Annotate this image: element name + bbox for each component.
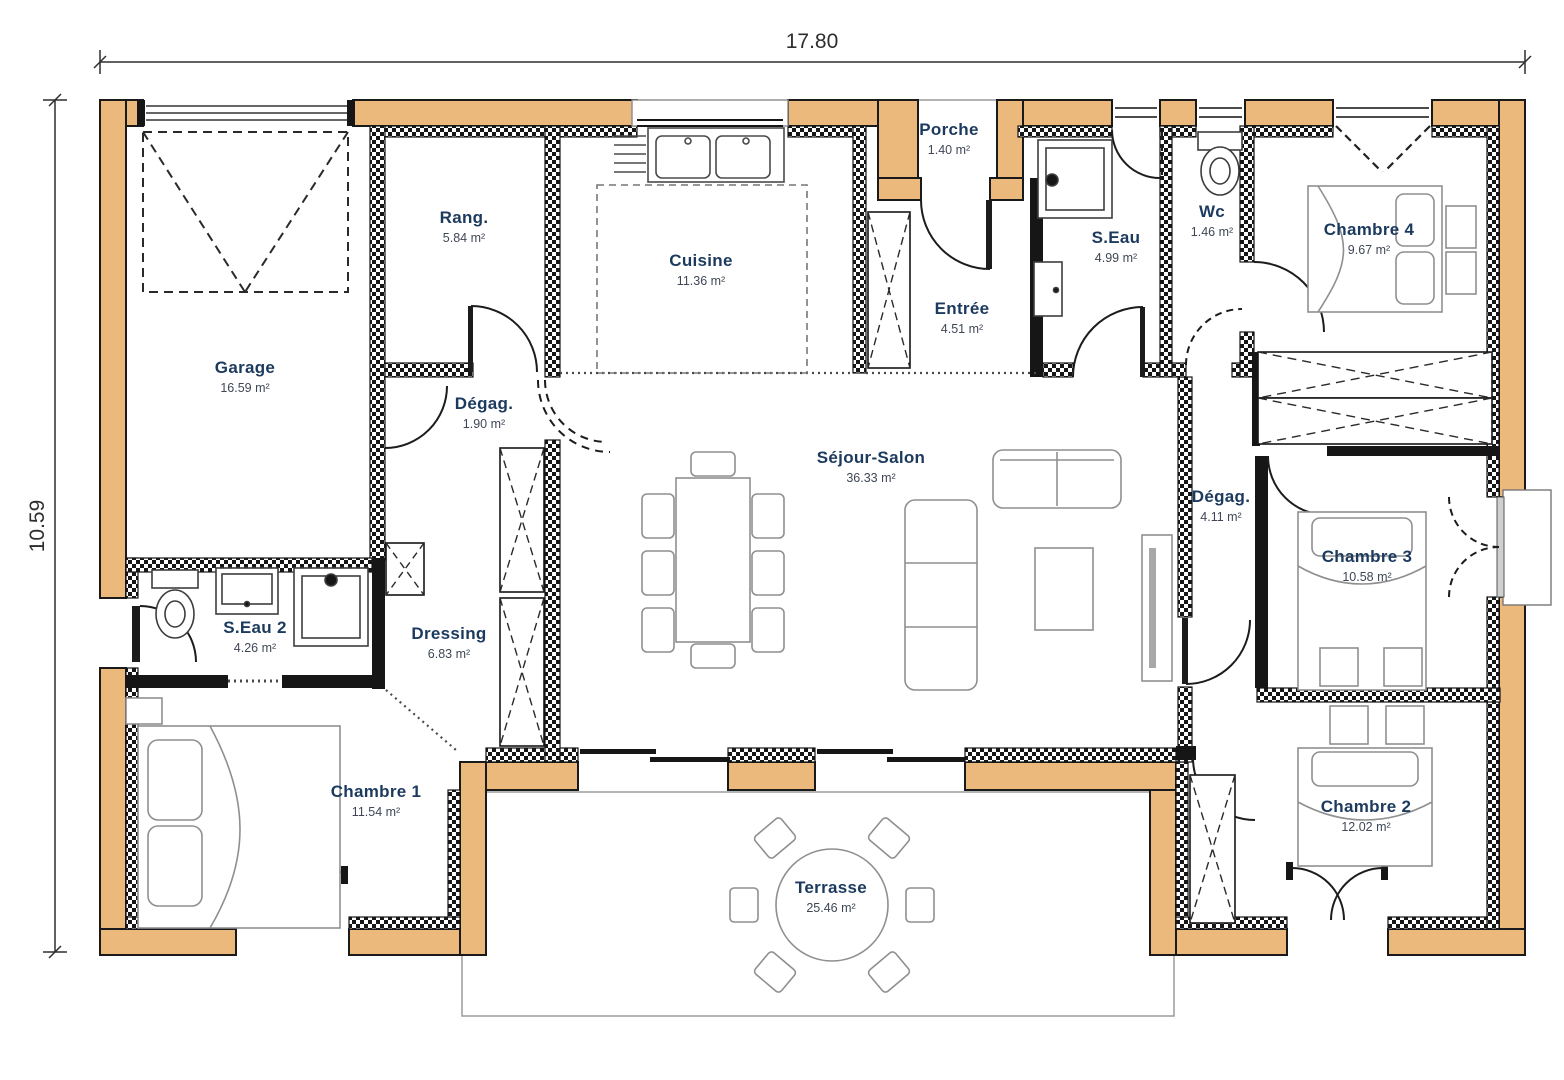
sofa-two-seat bbox=[993, 450, 1121, 508]
toilet-wc bbox=[1198, 132, 1242, 195]
kitchen-counter bbox=[597, 185, 807, 373]
terrace-table bbox=[730, 816, 934, 993]
coffee-table bbox=[1035, 548, 1093, 630]
toilet-s-eau-2 bbox=[152, 570, 198, 638]
bed-chambre-2 bbox=[1298, 706, 1432, 866]
sink-s-eau-2 bbox=[216, 568, 278, 614]
bed-chambre-1 bbox=[126, 698, 340, 928]
floor-plan-drawing bbox=[0, 0, 1564, 1080]
cabinet-s-eau bbox=[1034, 262, 1062, 316]
sofa-three-seat bbox=[905, 500, 977, 690]
shower-s-eau-2 bbox=[294, 568, 368, 646]
dimension-width-label: 17.80 bbox=[786, 30, 839, 54]
kitchen-sink bbox=[614, 128, 784, 182]
floor-plan-page: 17.80 10.59 Garage 16.59 m² Rang. 5.84 m… bbox=[0, 0, 1564, 1080]
garage-door-swing bbox=[143, 132, 348, 292]
tv-stand bbox=[1142, 535, 1172, 681]
bed-chambre-4 bbox=[1308, 186, 1476, 312]
bed-chambre-3 bbox=[1298, 512, 1426, 690]
shower-s-eau bbox=[1038, 140, 1112, 218]
dimension-height-label: 10.59 bbox=[26, 500, 50, 553]
dining-table bbox=[642, 452, 784, 668]
